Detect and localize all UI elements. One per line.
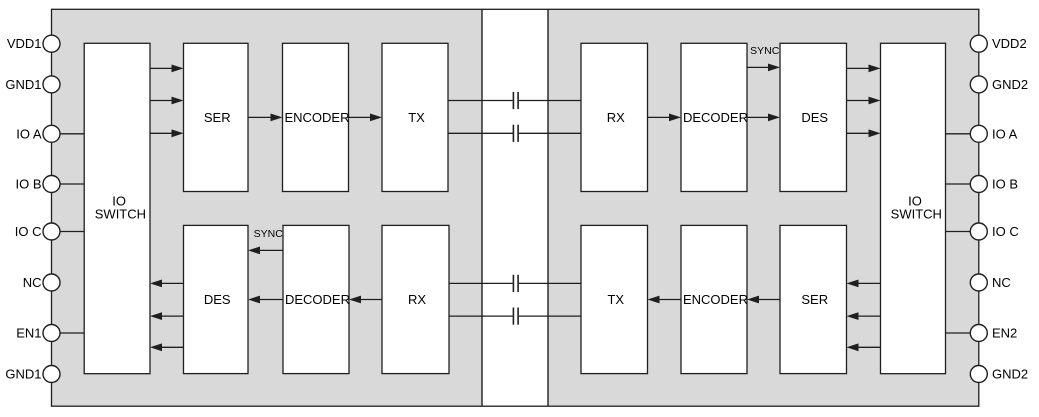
svg-text:SER: SER bbox=[204, 110, 231, 125]
svg-text:GND1: GND1 bbox=[5, 77, 41, 92]
svg-text:DES: DES bbox=[204, 292, 231, 307]
svg-text:SWITCH: SWITCH bbox=[95, 207, 146, 222]
svg-text:DECODER: DECODER bbox=[683, 110, 748, 125]
svg-text:TX: TX bbox=[607, 292, 624, 307]
svg-text:SYNC: SYNC bbox=[750, 45, 780, 57]
svg-text:VDD2: VDD2 bbox=[992, 36, 1027, 51]
svg-text:IO B: IO B bbox=[15, 177, 41, 192]
svg-text:RX: RX bbox=[408, 292, 426, 307]
svg-text:EN2: EN2 bbox=[992, 326, 1017, 341]
svg-text:GND2: GND2 bbox=[992, 367, 1028, 382]
svg-text:DECODER: DECODER bbox=[285, 292, 350, 307]
svg-text:SWITCH: SWITCH bbox=[891, 207, 942, 222]
svg-text:DES: DES bbox=[801, 110, 828, 125]
svg-text:IO C: IO C bbox=[15, 224, 42, 239]
svg-text:NC: NC bbox=[23, 275, 42, 290]
svg-text:GND2: GND2 bbox=[992, 77, 1028, 92]
svg-text:VDD1: VDD1 bbox=[7, 36, 42, 51]
svg-text:GND1: GND1 bbox=[5, 367, 41, 382]
svg-text:TX: TX bbox=[408, 110, 425, 125]
svg-text:RX: RX bbox=[607, 110, 625, 125]
svg-text:IO C: IO C bbox=[992, 224, 1019, 239]
svg-text:IO A: IO A bbox=[16, 126, 42, 141]
svg-text:IO B: IO B bbox=[992, 177, 1018, 192]
svg-text:SER: SER bbox=[801, 292, 828, 307]
svg-text:SYNC: SYNC bbox=[254, 228, 284, 240]
svg-text:ENCODER: ENCODER bbox=[284, 110, 349, 125]
svg-text:NC: NC bbox=[992, 275, 1011, 290]
svg-text:IO A: IO A bbox=[992, 126, 1018, 141]
svg-text:EN1: EN1 bbox=[16, 326, 41, 341]
svg-text:ENCODER: ENCODER bbox=[683, 292, 748, 307]
